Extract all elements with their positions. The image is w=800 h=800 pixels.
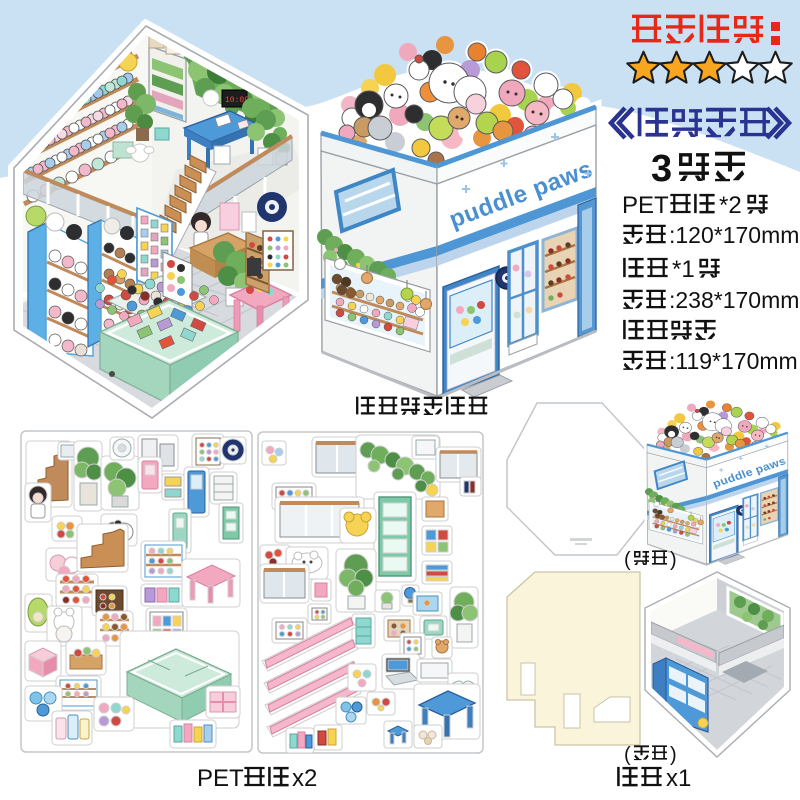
svg-text:): ) <box>670 744 677 766</box>
svg-text::120*170mm: :120*170mm <box>669 222 799 248</box>
svg-text:*2: *2 <box>719 192 742 219</box>
svg-text:PET: PET <box>622 192 669 219</box>
svg-text:x1: x1 <box>666 765 691 792</box>
svg-text:(: ( <box>624 744 631 766</box>
svg-text:*1: *1 <box>672 256 695 283</box>
svg-text:(: ( <box>624 549 631 571</box>
svg-text::238*170mm: :238*170mm <box>669 287 799 313</box>
svg-text:): ) <box>670 549 677 571</box>
svg-text:3: 3 <box>651 148 672 190</box>
svg-text:PET: PET <box>197 765 244 792</box>
svg-text::119*170mm: :119*170mm <box>669 348 798 374</box>
svg-text:x2: x2 <box>292 765 317 792</box>
